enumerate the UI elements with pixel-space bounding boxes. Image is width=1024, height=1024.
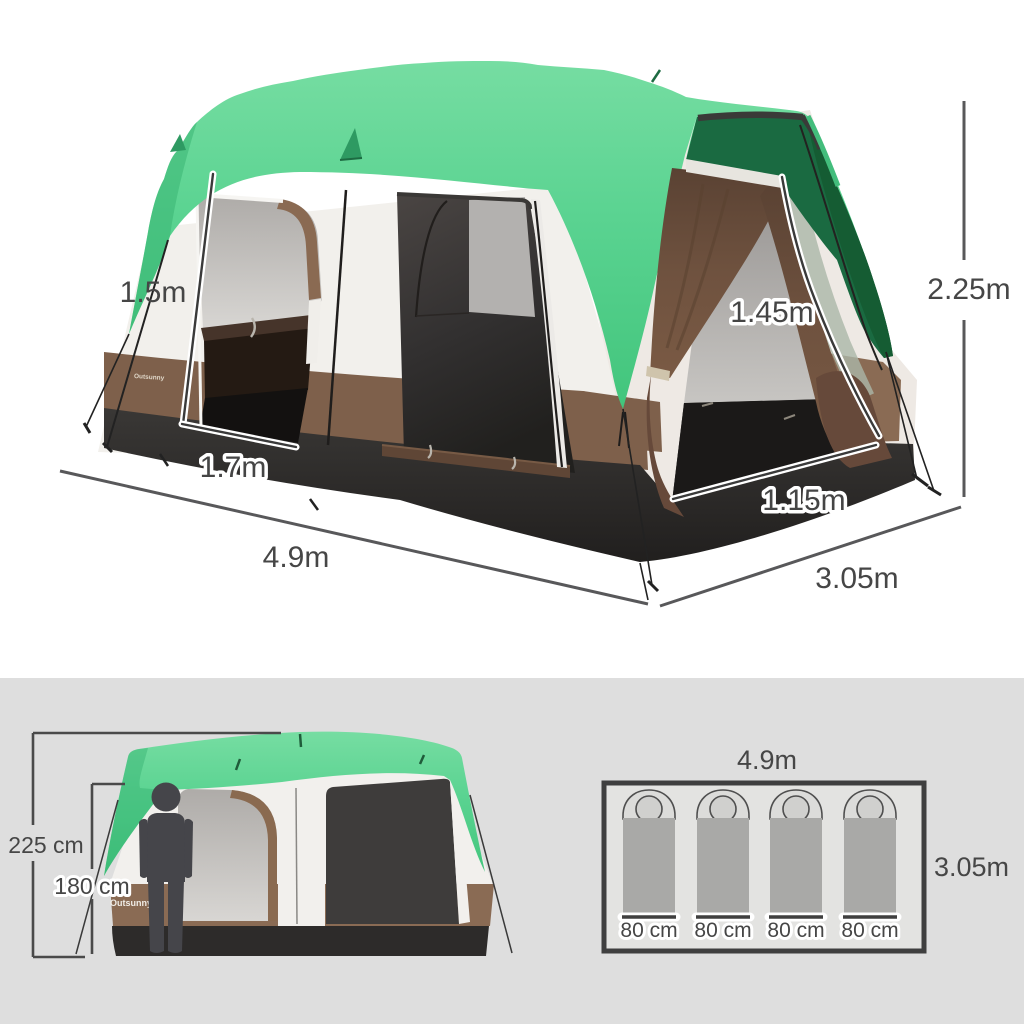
- svg-text:1.7m: 1.7m: [200, 451, 267, 484]
- svg-text:3.05m: 3.05m: [815, 562, 898, 595]
- svg-text:225 cm: 225 cm: [8, 832, 83, 858]
- svg-text:180 cm: 180 cm: [54, 873, 129, 899]
- svg-text:1.45m: 1.45m: [730, 296, 813, 329]
- svg-text:80 cm: 80 cm: [767, 919, 824, 942]
- svg-text:2.25m: 2.25m: [927, 273, 1010, 306]
- svg-text:80 cm: 80 cm: [841, 919, 898, 942]
- svg-text:80 cm: 80 cm: [694, 919, 751, 942]
- svg-text:80 cm: 80 cm: [620, 919, 677, 942]
- svg-text:3.05m: 3.05m: [934, 852, 1009, 882]
- svg-text:4.9m: 4.9m: [737, 745, 797, 775]
- svg-text:Outsunny: Outsunny: [110, 898, 152, 908]
- svg-text:1.5m: 1.5m: [120, 276, 187, 309]
- svg-text:4.9m: 4.9m: [263, 541, 330, 574]
- svg-text:1.15m: 1.15m: [762, 484, 845, 517]
